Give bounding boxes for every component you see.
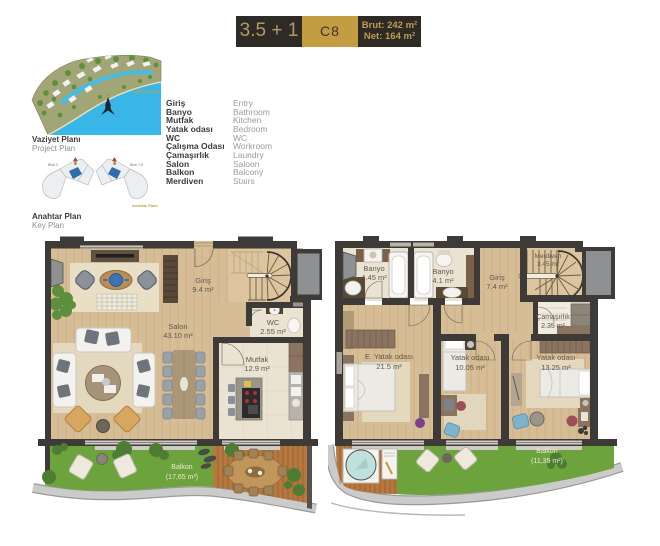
svg-text:2.35 m²: 2.35 m²	[541, 323, 565, 330]
svg-text:4.45 m²: 4.45 m²	[361, 273, 387, 282]
svg-text:Balkon: Balkon	[171, 464, 193, 471]
svg-text:2.55 m²: 2.55 m²	[260, 327, 286, 336]
svg-text:Anahtar Planı: Anahtar Planı	[132, 203, 158, 208]
svg-text:7.4 m²: 7.4 m²	[486, 282, 508, 291]
svg-text:Yatak odası: Yatak odası	[450, 353, 489, 362]
svg-text:Blok 3: Blok 3	[48, 163, 58, 167]
svg-text:E. Yatak odası: E. Yatak odası	[365, 352, 413, 361]
svg-text:Mutfak: Mutfak	[246, 355, 269, 364]
svg-text:43.10 m²: 43.10 m²	[163, 331, 193, 340]
svg-text:21.5 m²: 21.5 m²	[376, 362, 402, 371]
svg-text:Balkon: Balkon	[536, 448, 558, 455]
svg-text:Blok 7-8: Blok 7-8	[130, 163, 143, 167]
svg-text:3.45 m²: 3.45 m²	[537, 261, 560, 268]
svg-text:(17,65 m²): (17,65 m²)	[166, 474, 198, 481]
svg-text:Banyo: Banyo	[363, 264, 384, 273]
svg-text:12.9 m²: 12.9 m²	[244, 364, 270, 373]
svg-text:(11,35 m²): (11,35 m²)	[531, 458, 563, 465]
svg-text:10.05 m²: 10.05 m²	[455, 363, 485, 372]
svg-text:WC: WC	[267, 318, 280, 327]
svg-text:Vaziyet Planı: Vaziyet Planı	[132, 89, 159, 94]
svg-text:Çamaşırlık: Çamaşırlık	[536, 314, 570, 321]
svg-text:Giriş: Giriş	[195, 276, 211, 285]
svg-text:13.25 m²: 13.25 m²	[541, 363, 571, 372]
svg-text:4.1 m²: 4.1 m²	[432, 276, 454, 285]
svg-text:Banyo: Banyo	[432, 267, 453, 276]
svg-text:Salon: Salon	[168, 322, 187, 331]
svg-text:Giriş: Giriş	[489, 273, 505, 282]
svg-text:Yatak odası: Yatak odası	[536, 353, 575, 362]
svg-text:Merdiven: Merdiven	[535, 253, 562, 260]
svg-text:9.4 m²: 9.4 m²	[192, 285, 214, 294]
